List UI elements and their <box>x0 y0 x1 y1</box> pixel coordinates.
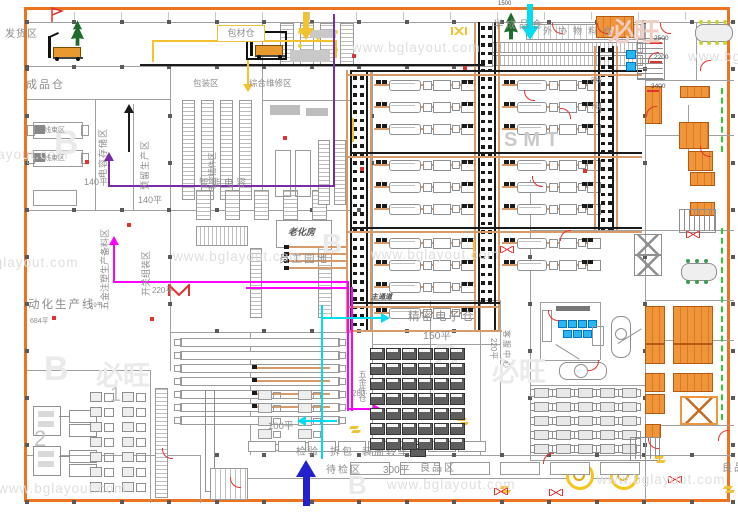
zone-label-good-products: 良品区 <box>420 464 456 474</box>
feeder-box <box>481 196 485 200</box>
chair-dot <box>298 44 302 48</box>
smt-unit <box>452 283 460 291</box>
route-yellow <box>303 12 309 28</box>
feeder-box <box>504 160 509 164</box>
feeder-box <box>481 111 485 115</box>
feeder-box <box>488 35 492 39</box>
column-marker <box>690 453 694 457</box>
route-cyan-arrow <box>297 416 306 426</box>
yellow-mark <box>725 490 735 493</box>
feeder-box <box>376 124 381 128</box>
column-marker <box>120 65 124 69</box>
feeder-box <box>382 182 387 186</box>
route-cyan <box>321 317 383 319</box>
area-label-140: 140平 <box>84 178 108 187</box>
feeder-box <box>353 280 357 284</box>
workbench <box>258 403 272 413</box>
column-marker <box>72 65 76 69</box>
line-endcap <box>174 339 182 346</box>
feeder-box <box>360 93 364 97</box>
column-marker <box>500 500 504 504</box>
chair-dot <box>704 280 708 284</box>
smt-frame <box>478 22 480 332</box>
line-endcap <box>338 378 346 385</box>
feeder-box <box>468 204 473 208</box>
bench <box>574 403 579 411</box>
good-products-table <box>500 462 540 475</box>
feeder-box <box>582 238 587 242</box>
feeder-box <box>488 239 492 243</box>
red-marker <box>127 223 131 227</box>
feeder-box <box>360 144 364 148</box>
feeder-box <box>353 246 357 250</box>
column-marker <box>357 453 361 457</box>
workbench <box>298 429 312 439</box>
feeder-box <box>360 102 364 106</box>
feeder-box <box>360 204 364 208</box>
feeder-box <box>382 204 387 208</box>
column-marker <box>731 349 735 353</box>
desk-cluster <box>680 86 710 98</box>
bench <box>552 417 557 425</box>
column-marker <box>310 329 314 333</box>
feeder-box <box>252 404 257 408</box>
column-marker <box>168 302 172 306</box>
zone-label-precision-warehouse: 精密电子仓 <box>408 312 476 324</box>
smt-machine <box>389 282 421 293</box>
red-marker <box>283 136 287 140</box>
feeder-box <box>360 255 364 259</box>
feeder-box <box>382 308 387 312</box>
rack-label-wire-area: 线束区 <box>44 127 65 134</box>
smt-frame <box>366 70 368 332</box>
feeder-box <box>360 263 364 267</box>
watermark-text: www.bglayout.com <box>688 49 738 64</box>
feeder-box <box>488 111 492 115</box>
column-marker <box>528 302 532 306</box>
feeder-box <box>353 144 357 148</box>
feeder-box <box>601 176 605 180</box>
feeder-box <box>252 365 257 369</box>
pallet-grid <box>210 468 248 500</box>
stool <box>313 405 321 412</box>
feeder-box <box>488 94 492 98</box>
pallet-top <box>451 349 462 352</box>
feeder-box <box>353 85 357 89</box>
line-endcap <box>338 365 346 372</box>
packing-material-label-box: 包材仓 <box>217 25 265 42</box>
feeder-box <box>510 102 515 106</box>
zone-label-finished-goods: 成品仓 <box>26 80 65 91</box>
canteen-table <box>600 444 615 454</box>
workstation <box>136 483 146 492</box>
feeder-box <box>488 196 492 200</box>
smt-unit <box>433 124 451 135</box>
column-marker <box>452 500 456 504</box>
line-label-7: 7线 <box>591 104 602 111</box>
feeder-box <box>360 280 364 284</box>
column-marker <box>643 161 647 165</box>
conference-table <box>681 263 717 281</box>
smt-unit <box>559 204 577 215</box>
desk-cluster <box>645 373 665 392</box>
dimension-tick <box>356 12 357 20</box>
rack-strip <box>318 140 330 205</box>
red-flag-icon <box>50 7 64 22</box>
chair-dot <box>707 41 711 45</box>
workstation <box>122 407 134 417</box>
column-marker <box>405 500 409 504</box>
smt-unit <box>559 182 577 193</box>
smt-frame-tan <box>346 306 500 308</box>
feeder-box <box>481 290 485 294</box>
feeder-box <box>488 273 492 277</box>
canteen-table <box>534 402 549 412</box>
good-products-table <box>450 462 490 475</box>
bench <box>618 389 623 397</box>
red-marker <box>52 316 56 320</box>
pallet-top <box>451 394 462 397</box>
desk-cluster <box>679 122 709 149</box>
wall <box>645 80 734 81</box>
pallet-top <box>403 409 414 412</box>
zone-label-smt: SMT <box>504 130 564 150</box>
feeder-box <box>353 161 357 165</box>
feeder-box <box>360 289 364 293</box>
pallet-top <box>371 409 382 412</box>
feeder-box <box>360 212 364 216</box>
feeder-box <box>481 94 485 98</box>
feeder-box <box>353 187 357 191</box>
feeder-box <box>360 297 364 301</box>
feeder-box <box>488 77 492 81</box>
feeder-box <box>488 26 492 30</box>
line-endcap <box>174 391 182 398</box>
feeder-box <box>353 263 357 267</box>
pallet-top <box>451 364 462 367</box>
block <box>290 50 330 62</box>
stool <box>273 431 281 438</box>
feeder-box <box>481 77 485 81</box>
pallet-top <box>435 394 446 397</box>
feeder-box <box>601 133 605 137</box>
route-black-arrow <box>124 104 134 113</box>
bench <box>636 403 641 411</box>
smt-unit <box>423 103 432 112</box>
drawing-layer <box>0 0 738 516</box>
zone-label-outsourced-material: 外协物料仓 <box>543 27 618 36</box>
feeder-box <box>601 218 605 222</box>
feeder-box <box>360 178 364 182</box>
dimension-3400: 3400 <box>651 84 665 91</box>
feeder-box <box>353 204 357 208</box>
feeder-box <box>488 222 492 226</box>
wall <box>372 70 373 332</box>
feeder-box <box>601 184 605 188</box>
line-endcap <box>174 365 182 372</box>
feeder-box <box>376 308 381 312</box>
line-label-8: 8线 <box>591 77 602 84</box>
showroom-chair <box>568 320 577 328</box>
column-marker <box>731 255 735 259</box>
feeder-box <box>504 102 509 106</box>
door-bowtie-icon <box>686 231 700 238</box>
workstation <box>122 437 134 447</box>
zone-label-capacitor-plugin: 电容插件区 <box>209 152 217 192</box>
feeder-box <box>353 238 357 242</box>
canteen-table <box>534 416 549 426</box>
desk-cluster <box>645 394 665 414</box>
pallet-top <box>387 439 398 442</box>
feeder-box <box>252 378 257 382</box>
bench <box>530 403 535 411</box>
green-dashed-line <box>721 228 723 420</box>
feeder-box <box>360 246 364 250</box>
canteen-table <box>600 430 615 440</box>
jack-wheel <box>55 57 59 61</box>
smt-frame-tan <box>370 70 372 332</box>
feeder-box <box>481 205 485 209</box>
smt-unit <box>549 205 558 214</box>
chair-dot <box>715 20 719 24</box>
feeder-box <box>504 124 509 128</box>
feeder-box <box>582 160 587 164</box>
conference-table <box>695 24 733 42</box>
green-dashed-line <box>721 88 723 152</box>
wall <box>170 66 171 371</box>
feeder-box <box>353 212 357 216</box>
feeder-box <box>481 179 485 183</box>
smt-frame-tan <box>498 22 500 332</box>
zone-label-maintenance: 综合维修区 <box>249 79 292 88</box>
smt-machine <box>389 124 421 135</box>
feeder-box <box>601 125 605 129</box>
area-label-220: 220平 <box>152 287 173 295</box>
workbench <box>258 390 272 400</box>
feeder-box <box>252 391 257 395</box>
smt-unit <box>433 182 451 193</box>
column-marker <box>25 500 29 504</box>
pallet-top <box>451 409 462 412</box>
workstation <box>90 467 102 477</box>
vehicle-wheel <box>615 328 627 340</box>
smt-machine <box>517 102 547 113</box>
route-yellow <box>352 118 354 142</box>
column-marker <box>405 20 409 24</box>
workstation <box>122 452 134 462</box>
column-marker <box>642 500 646 504</box>
bench <box>574 431 579 439</box>
zone-label-packing-area: 包装区 <box>193 79 219 88</box>
dimension-tick <box>262 12 263 20</box>
dimension-tick <box>403 12 404 20</box>
workbench <box>298 403 312 413</box>
wall <box>27 66 492 67</box>
column-marker <box>690 500 694 504</box>
zone-label-reserved-production: 预留生产区 <box>141 140 150 190</box>
pallet-top <box>403 379 414 382</box>
canteen-table <box>534 388 549 398</box>
showroom-chair <box>573 330 582 338</box>
smt-machine-line <box>391 285 415 286</box>
feeder-box <box>504 238 509 242</box>
pallet-top <box>387 349 398 352</box>
bench <box>530 431 535 439</box>
canteen-table <box>622 388 637 398</box>
feeder-box <box>481 222 485 226</box>
area-label-150: 150平 <box>423 331 451 342</box>
cabinet <box>592 326 604 346</box>
pallet-top <box>387 379 398 382</box>
bench <box>596 445 601 453</box>
column-marker <box>168 161 172 165</box>
branch-conveyor <box>252 380 330 382</box>
feeder-box <box>481 145 485 149</box>
feeder-box <box>588 124 593 128</box>
bench <box>530 417 535 425</box>
column-marker <box>25 20 29 24</box>
smt-machine-line <box>519 163 541 164</box>
pallet-top <box>435 409 446 412</box>
feeder-box <box>462 124 467 128</box>
feeder-box <box>382 80 387 84</box>
canteen-table <box>556 388 571 398</box>
bench <box>530 445 535 453</box>
rack-strip <box>196 190 211 220</box>
route-cyan <box>321 305 323 459</box>
pallet-top <box>387 364 398 367</box>
zone-label-capacitor-storage: 电容存储区 <box>99 128 108 178</box>
pallet-top <box>403 424 414 427</box>
bench <box>574 389 579 397</box>
feeder-box <box>488 120 492 124</box>
jack-mast <box>48 36 51 58</box>
route-magenta <box>246 287 349 289</box>
smt-unit <box>423 283 432 292</box>
smt-unit <box>433 102 451 113</box>
workstation <box>104 408 114 417</box>
feeder-box <box>601 159 605 163</box>
smt-unit <box>559 160 577 171</box>
branch-conveyor <box>284 267 348 269</box>
feeder-box <box>481 213 485 217</box>
feeder-box <box>382 238 387 242</box>
smt-unit <box>559 80 577 91</box>
feeder-box <box>481 43 485 47</box>
column-marker <box>452 20 456 24</box>
workstation <box>122 392 134 402</box>
pallet-top <box>403 439 414 442</box>
column-marker <box>310 500 314 504</box>
bench <box>552 445 557 453</box>
pallet-top <box>435 379 446 382</box>
pallet-top <box>403 394 414 397</box>
route-cyan-arrow <box>381 313 390 323</box>
feeder-box <box>360 195 364 199</box>
column-marker <box>167 20 171 24</box>
workstation <box>136 393 146 402</box>
route-purple <box>333 14 335 187</box>
smt-unit <box>452 125 460 133</box>
feeder-box <box>481 239 485 243</box>
column-marker <box>168 114 172 118</box>
column-marker <box>731 208 735 212</box>
column-marker <box>731 396 735 400</box>
workstation <box>136 453 146 462</box>
bench <box>618 431 623 439</box>
smt-machine-line <box>519 105 541 106</box>
feeder-box <box>601 91 605 95</box>
smt-unit <box>452 183 460 191</box>
feeder-box <box>353 323 357 327</box>
feeder-box <box>360 136 364 140</box>
workstation <box>90 437 102 447</box>
route-cyan <box>305 420 337 422</box>
column-marker <box>215 500 219 504</box>
feeder-box <box>601 116 605 120</box>
pallet-top <box>419 379 430 382</box>
vehicle-wheel <box>574 364 588 378</box>
line-endcap <box>174 404 182 411</box>
smt-frame-tan <box>346 74 642 76</box>
pallet-top <box>419 349 430 352</box>
workstation <box>104 453 114 462</box>
feeder-box <box>376 204 381 208</box>
dimension-tick <box>215 12 216 20</box>
pallet-top <box>435 424 446 427</box>
desk-cluster <box>673 344 713 364</box>
smt-frame <box>350 227 642 229</box>
pallet-top <box>419 439 430 442</box>
feeder-box <box>601 142 605 146</box>
smt-frame-tan <box>346 156 642 158</box>
bench <box>574 417 579 425</box>
line-number-1: 1 <box>110 385 121 405</box>
feeder-box <box>488 128 492 132</box>
pallet-top <box>371 379 382 382</box>
rack-strip <box>225 190 240 220</box>
workstation <box>104 438 114 447</box>
dimension-2200: 2200 <box>654 55 668 62</box>
bench <box>618 403 623 411</box>
feeder-box <box>488 171 492 175</box>
conveyor-strip <box>155 388 168 498</box>
feeder-box <box>481 103 485 107</box>
zone-label-pending-inspection: 待检区 <box>326 466 362 476</box>
column-marker <box>262 453 266 457</box>
feeder-box <box>360 76 364 80</box>
canteen-table <box>578 416 593 426</box>
column-marker <box>731 20 735 24</box>
zone-label-packing-material: 包材仓 <box>227 29 254 38</box>
smt-machine-line <box>391 263 415 264</box>
route-blue <box>303 476 310 506</box>
feeder-box <box>488 281 492 285</box>
wall <box>540 302 600 303</box>
pallet-top <box>419 409 430 412</box>
canteen-table <box>578 444 593 454</box>
canteen-table <box>534 444 549 454</box>
chair-dot <box>686 280 690 284</box>
feeder-box <box>510 182 515 186</box>
desk-cluster <box>673 306 713 344</box>
feeder-box <box>360 221 364 225</box>
smt-unit <box>423 205 432 214</box>
feeder-box <box>488 205 492 209</box>
area-label-220: 220平 <box>489 338 497 359</box>
chair-dot <box>695 259 699 263</box>
feeder-box <box>588 182 593 186</box>
